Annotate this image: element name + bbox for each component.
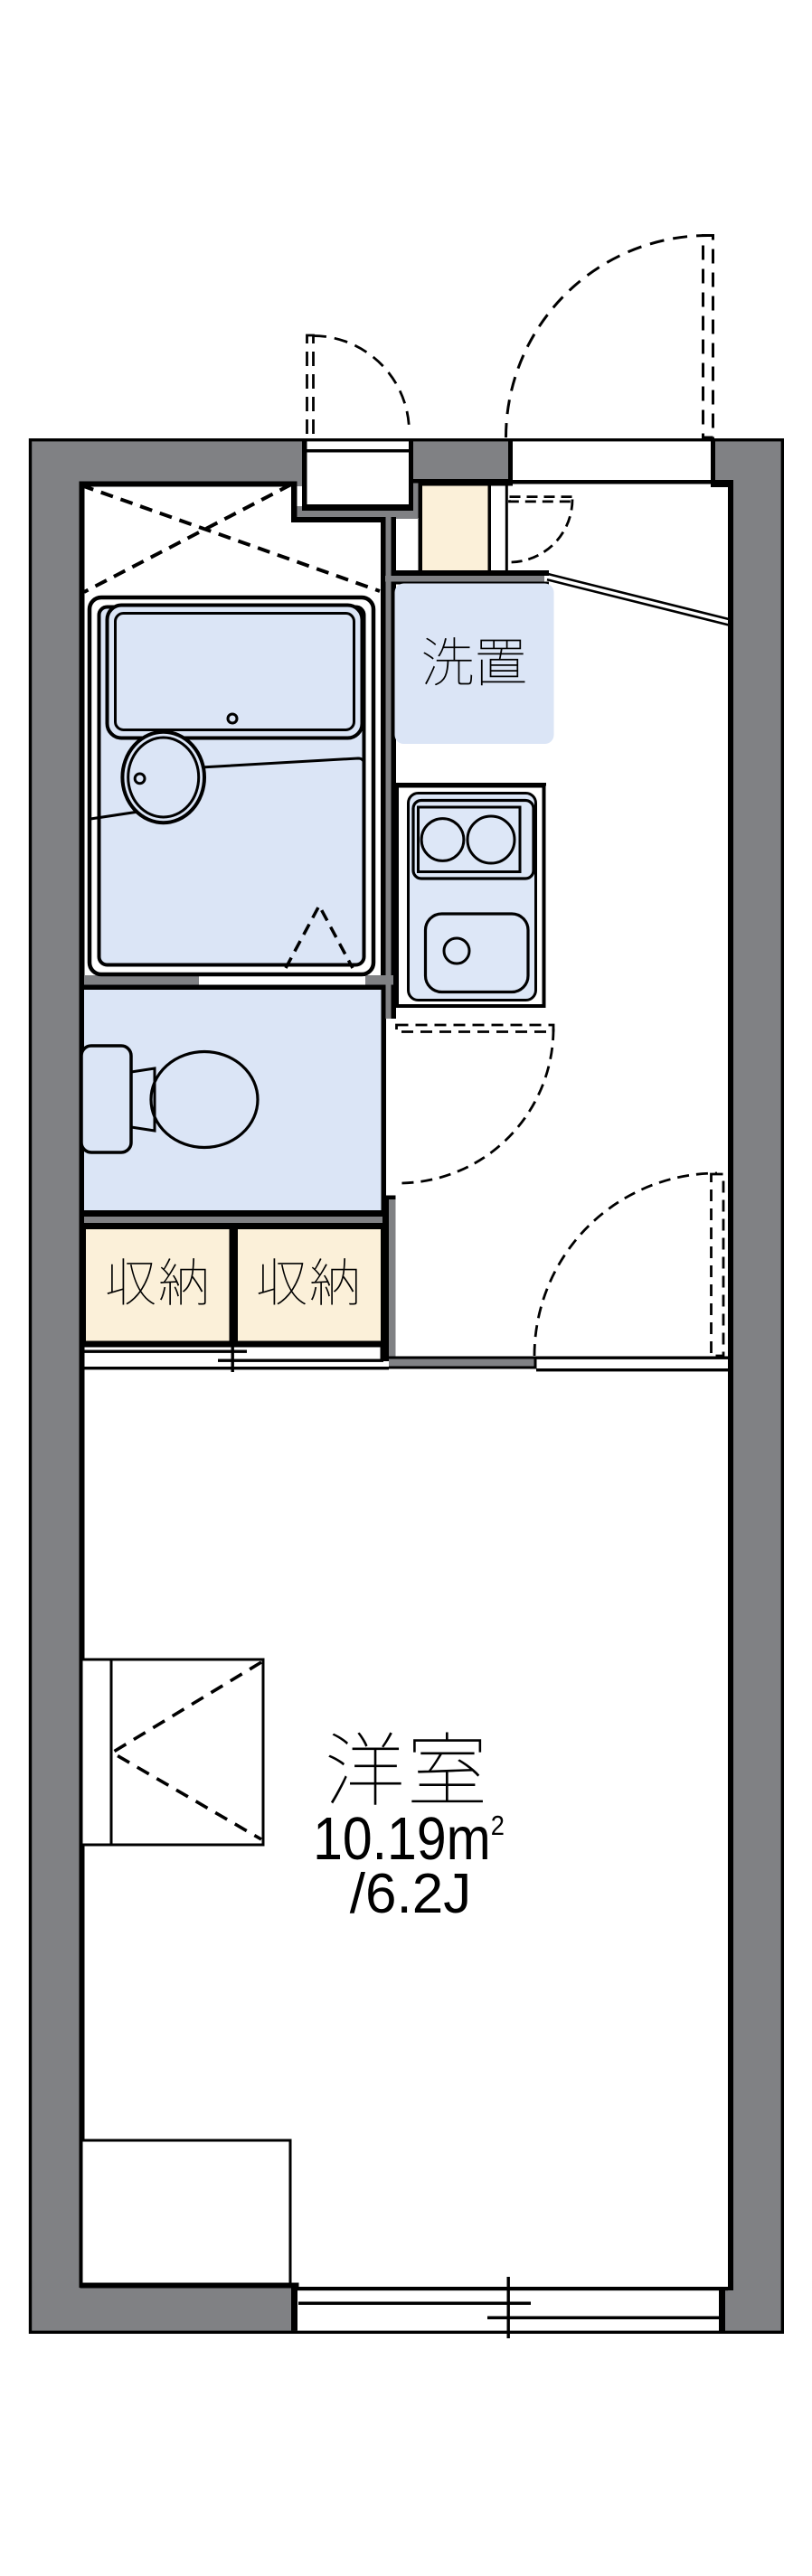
svg-text:/6.2J: /6.2J	[350, 1863, 471, 1925]
